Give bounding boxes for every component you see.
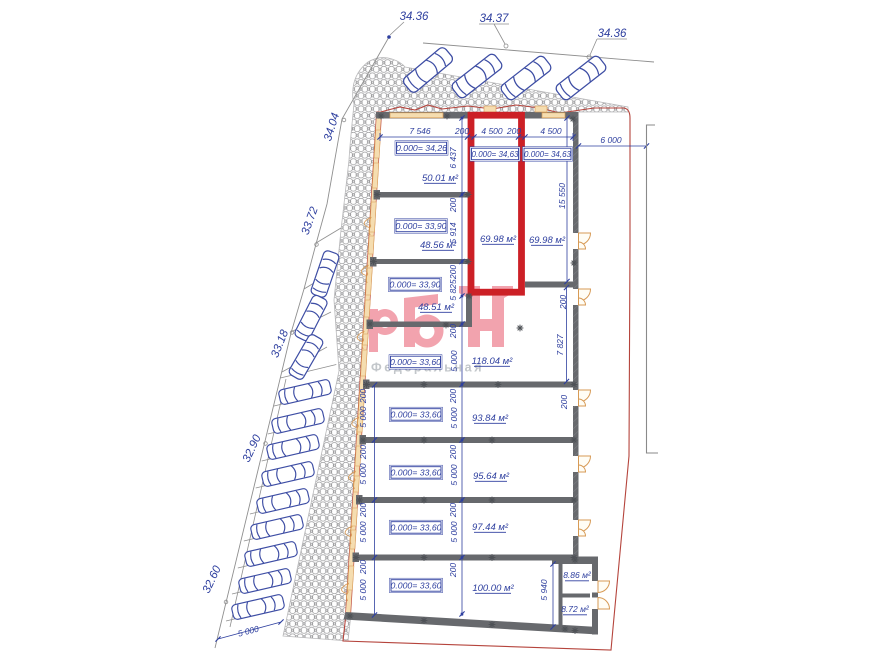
svg-text:4 500: 4 500 bbox=[540, 126, 562, 136]
svg-text:200: 200 bbox=[358, 389, 368, 404]
svg-text:200: 200 bbox=[559, 395, 569, 410]
svg-text:5 000: 5 000 bbox=[358, 579, 368, 601]
svg-text:34.37: 34.37 bbox=[480, 13, 509, 25]
svg-text:118.04 м²: 118.04 м² bbox=[472, 356, 514, 367]
svg-text:69.98 м²: 69.98 м² bbox=[529, 235, 566, 246]
svg-text:0.000= 33,60: 0.000= 33,60 bbox=[391, 468, 442, 478]
svg-text:34.36: 34.36 bbox=[400, 11, 429, 23]
svg-text:5 000: 5 000 bbox=[449, 521, 459, 543]
svg-text:5 825: 5 825 bbox=[448, 279, 458, 301]
svg-text:200: 200 bbox=[448, 503, 458, 518]
svg-text:200: 200 bbox=[358, 503, 368, 518]
svg-text:5 000: 5 000 bbox=[358, 521, 368, 543]
svg-text:5 000: 5 000 bbox=[358, 463, 368, 485]
svg-text:5 000: 5 000 bbox=[358, 406, 368, 428]
svg-text:200: 200 bbox=[448, 563, 458, 578]
svg-text:0.000= 33,60: 0.000= 33,60 bbox=[391, 523, 442, 533]
svg-text:50.01 м²: 50.01 м² bbox=[422, 173, 459, 184]
svg-text:6 437: 6 437 bbox=[448, 147, 458, 169]
svg-text:5 000: 5 000 bbox=[449, 407, 459, 429]
svg-text:0.000= 34,63: 0.000= 34,63 bbox=[472, 150, 519, 159]
svg-text:0.000= 33,90: 0.000= 33,90 bbox=[390, 280, 441, 290]
svg-text:7 546: 7 546 bbox=[409, 126, 431, 136]
svg-text:48.56 м²: 48.56 м² bbox=[420, 240, 457, 251]
svg-text:100.00 м²: 100.00 м² bbox=[472, 583, 514, 594]
svg-text:200: 200 bbox=[358, 445, 368, 460]
svg-text:0.000= 33,60: 0.000= 33,60 bbox=[390, 357, 441, 367]
svg-text:4 500: 4 500 bbox=[481, 126, 503, 136]
svg-text:6 000: 6 000 bbox=[600, 135, 622, 145]
svg-text:200: 200 bbox=[506, 126, 521, 136]
svg-text:200: 200 bbox=[448, 389, 458, 404]
svg-text:69.98 м²: 69.98 м² bbox=[480, 234, 517, 245]
svg-text:93.84 м²: 93.84 м² bbox=[472, 413, 509, 424]
svg-text:0.000= 34,26: 0.000= 34,26 bbox=[396, 143, 447, 153]
svg-text:48.51 м²: 48.51 м² bbox=[418, 302, 455, 313]
svg-text:34.36: 34.36 bbox=[598, 28, 627, 40]
svg-text:5 000: 5 000 bbox=[449, 464, 459, 486]
svg-text:95.64 м²: 95.64 м² bbox=[473, 471, 510, 482]
svg-text:200: 200 bbox=[358, 560, 368, 575]
svg-text:5 000: 5 000 bbox=[449, 350, 459, 372]
svg-text:200: 200 bbox=[448, 445, 458, 460]
svg-text:8.72 м²: 8.72 м² bbox=[561, 604, 590, 614]
svg-text:15 550: 15 550 bbox=[557, 183, 567, 209]
svg-text:97.44 м²: 97.44 м² bbox=[472, 522, 509, 533]
svg-text:0.000= 34,63: 0.000= 34,63 bbox=[524, 150, 571, 159]
svg-text:200: 200 bbox=[448, 198, 458, 213]
svg-text:8.86 м²: 8.86 м² bbox=[563, 570, 592, 580]
svg-text:7 827: 7 827 bbox=[555, 334, 565, 356]
svg-text:200: 200 bbox=[448, 324, 458, 339]
svg-text:5 940: 5 940 bbox=[539, 579, 549, 601]
svg-text:0.000= 33,60: 0.000= 33,60 bbox=[391, 581, 442, 591]
svg-text:200: 200 bbox=[448, 265, 458, 280]
svg-text:0.000= 33,90: 0.000= 33,90 bbox=[396, 221, 447, 231]
svg-text:0.000= 33,60: 0.000= 33,60 bbox=[391, 410, 442, 420]
